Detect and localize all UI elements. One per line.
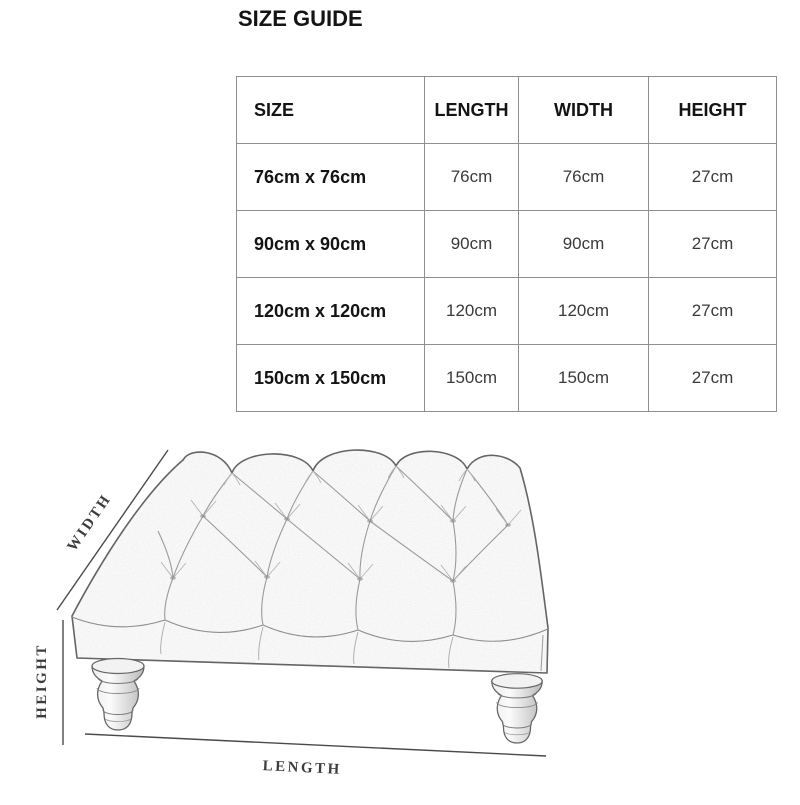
page-title: SIZE GUIDE — [238, 6, 363, 32]
table-cell-width: 150cm — [519, 345, 649, 412]
ottoman-sketch-svg: WIDTH HEIGHT LENGTH — [30, 423, 575, 800]
table-header-length: LENGTH — [425, 77, 519, 144]
table-cell-width: 90cm — [519, 211, 649, 278]
table-cell-length: 150cm — [425, 345, 519, 412]
tuft-button — [357, 577, 363, 581]
table-cell-height: 27cm — [649, 345, 777, 412]
table-cell-size: 150cm x 150cm — [237, 345, 425, 412]
table-cell-size: 90cm x 90cm — [237, 211, 425, 278]
front-right-leg — [492, 674, 542, 743]
tuft-button — [170, 576, 176, 580]
table-header-width: WIDTH — [519, 77, 649, 144]
tuft-button — [200, 514, 206, 518]
width-dimension-label: WIDTH — [64, 491, 114, 554]
length-dimension-line — [85, 734, 546, 756]
ottoman-body — [72, 450, 548, 673]
tuft-button — [450, 579, 456, 583]
tuft-button — [264, 575, 270, 579]
table-row: 90cm x 90cm90cm90cm27cm — [237, 211, 777, 278]
table-cell-size: 120cm x 120cm — [237, 278, 425, 345]
table-row: 76cm x 76cm76cm76cm27cm — [237, 144, 777, 211]
table-header-row: SIZELENGTHWIDTHHEIGHT — [237, 77, 777, 144]
table-cell-width: 120cm — [519, 278, 649, 345]
front-left-leg — [92, 659, 144, 731]
table-cell-width: 76cm — [519, 144, 649, 211]
tuft-button — [367, 519, 373, 523]
table-cell-length: 90cm — [425, 211, 519, 278]
table-cell-length: 76cm — [425, 144, 519, 211]
size-table-body: 76cm x 76cm76cm76cm27cm90cm x 90cm90cm90… — [237, 144, 777, 412]
table-row: 150cm x 150cm150cm150cm27cm — [237, 345, 777, 412]
table-cell-height: 27cm — [649, 278, 777, 345]
size-table: SIZELENGTHWIDTHHEIGHT 76cm x 76cm76cm76c… — [236, 76, 777, 412]
fabric-texture — [72, 450, 548, 673]
table-cell-length: 120cm — [425, 278, 519, 345]
tuft-button — [450, 519, 456, 523]
table-cell-height: 27cm — [649, 211, 777, 278]
size-guide-page: { "title": "SIZE GUIDE", "table": { "col… — [0, 0, 800, 800]
table-row: 120cm x 120cm120cm120cm27cm — [237, 278, 777, 345]
size-table-head: SIZELENGTHWIDTHHEIGHT — [237, 77, 777, 144]
table-cell-size: 76cm x 76cm — [237, 144, 425, 211]
table-header-height: HEIGHT — [649, 77, 777, 144]
height-dimension-label: HEIGHT — [34, 643, 50, 719]
tuft-button — [284, 517, 290, 521]
table-cell-height: 27cm — [649, 144, 777, 211]
tuft-button — [505, 523, 511, 527]
dimension-diagram: WIDTH HEIGHT LENGTH — [30, 423, 575, 800]
table-header-size: SIZE — [237, 77, 425, 144]
length-dimension-label: LENGTH — [262, 758, 342, 778]
